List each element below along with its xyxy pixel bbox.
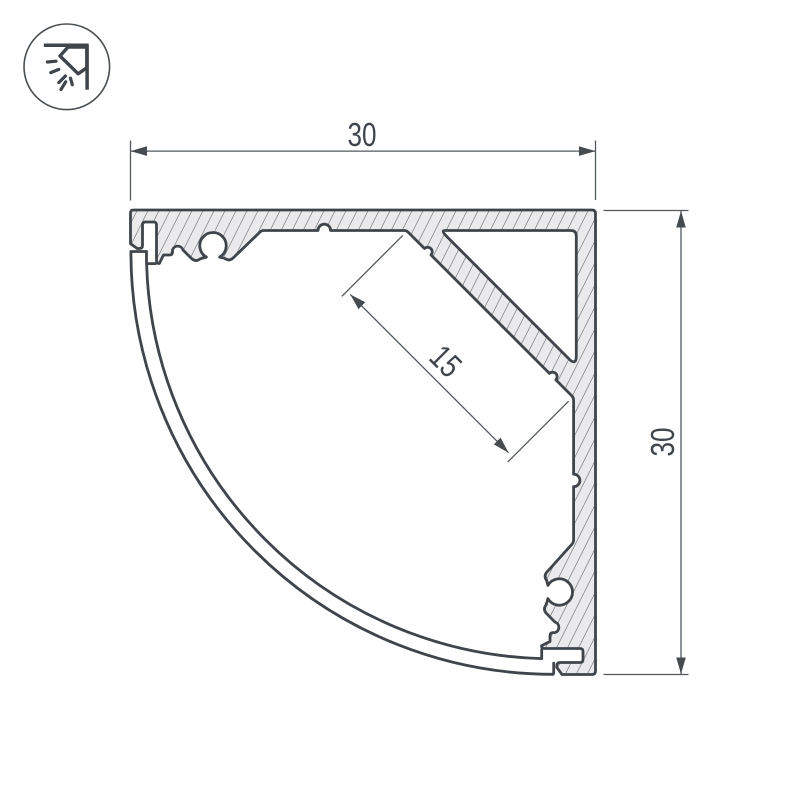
- svg-text:15: 15: [423, 338, 470, 385]
- svg-text:30: 30: [644, 428, 681, 457]
- svg-text:30: 30: [348, 116, 377, 153]
